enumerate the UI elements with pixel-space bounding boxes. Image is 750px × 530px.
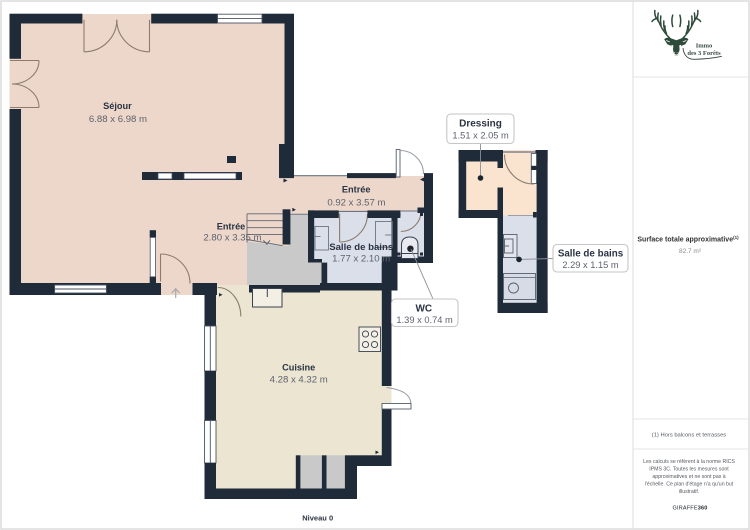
svg-text:Entrée: Entrée <box>217 222 246 232</box>
svg-text:2.29 x 1.15 m: 2.29 x 1.15 m <box>562 260 619 270</box>
svg-text:2.80 x 3.35 m: 2.80 x 3.35 m <box>203 233 261 244</box>
svg-text:Salle de bains: Salle de bains <box>329 242 393 253</box>
svg-text:IPMS 3C. Toutes les mesures so: IPMS 3C. Toutes les mesures sont <box>649 467 729 473</box>
svg-text:6.88 x 6.98 m: 6.88 x 6.98 m <box>89 114 147 125</box>
svg-text:Entrée: Entrée <box>342 184 371 194</box>
svg-text:illustratif.: illustratif. <box>679 489 699 495</box>
svg-text:des 3 Forêts: des 3 Forêts <box>687 50 721 57</box>
svg-text:Cuisine: Cuisine <box>282 363 315 373</box>
svg-text:1.77 x 2.10 m: 1.77 x 2.10 m <box>332 254 390 265</box>
svg-text:approximatives et ne sont pas: approximatives et ne sont pas à <box>652 474 725 480</box>
svg-text:l'échelle. Ce plan d'étage n'a: l'échelle. Ce plan d'étage n'a qu'un but <box>645 482 734 488</box>
svg-text:WC: WC <box>415 304 432 315</box>
svg-text:4.28 x 4.32 m: 4.28 x 4.32 m <box>270 375 328 386</box>
svg-text:Séjour: Séjour <box>103 101 132 111</box>
svg-text:Surface totale approximative(1: Surface totale approximative(1) <box>637 235 739 244</box>
svg-text:0.92 x 3.57 m: 0.92 x 3.57 m <box>327 197 385 208</box>
svg-text:Dressing: Dressing <box>459 119 502 130</box>
svg-text:Salle de bains: Salle de bains <box>558 249 624 260</box>
svg-text:GIRAFFE360: GIRAFFE360 <box>672 506 707 512</box>
svg-text:Niveau 0: Niveau 0 <box>302 514 333 523</box>
svg-text:Immo: Immo <box>696 42 713 49</box>
svg-text:1.39 x 0.74 m: 1.39 x 0.74 m <box>396 315 453 325</box>
svg-text:(1) Hors balcons et terrasses: (1) Hors balcons et terrasses <box>652 433 727 439</box>
svg-text:82.7 m²: 82.7 m² <box>679 248 702 255</box>
svg-text:1.51 x 2.05 m: 1.51 x 2.05 m <box>452 131 509 141</box>
svg-text:Les calculs se réfèrent à la n: Les calculs se réfèrent à la norme RICS <box>643 459 735 465</box>
